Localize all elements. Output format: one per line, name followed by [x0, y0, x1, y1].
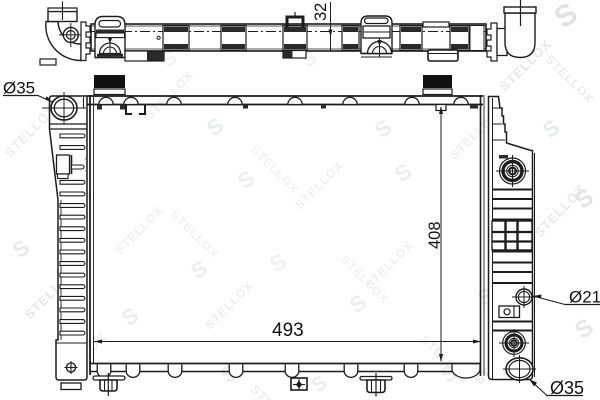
svg-text:S: S	[570, 313, 599, 344]
svg-text:Ø35: Ø35	[550, 378, 584, 398]
svg-text:S: S	[370, 114, 396, 143]
svg-text:S: S	[202, 112, 228, 141]
svg-text:S: S	[390, 158, 416, 187]
svg-text:STELLOX: STELLOX	[142, 68, 196, 122]
svg-text:Ø21: Ø21	[569, 288, 600, 307]
svg-text:STELLOX: STELLOX	[543, 52, 597, 106]
svg-text:S: S	[265, 248, 291, 277]
svg-text:S: S	[186, 255, 212, 284]
svg-text:STELLOX: STELLOX	[168, 207, 222, 261]
svg-text:32: 32	[312, 3, 330, 21]
svg-text:S: S	[345, 289, 371, 318]
svg-text:S: S	[538, 114, 564, 143]
svg-text:STELLOX: STELLOX	[112, 203, 166, 257]
svg-text:S: S	[117, 302, 143, 331]
svg-text:STELLOX: STELLOX	[202, 278, 256, 332]
svg-text:493: 493	[272, 320, 304, 341]
svg-text:S: S	[233, 165, 259, 194]
svg-text:S: S	[308, 372, 332, 398]
svg-text:Ø35: Ø35	[3, 79, 35, 98]
svg-text:STELLOX: STELLOX	[248, 142, 302, 196]
svg-text:408: 408	[426, 221, 444, 249]
svg-text:S: S	[8, 234, 34, 263]
svg-text:S: S	[548, 0, 583, 35]
